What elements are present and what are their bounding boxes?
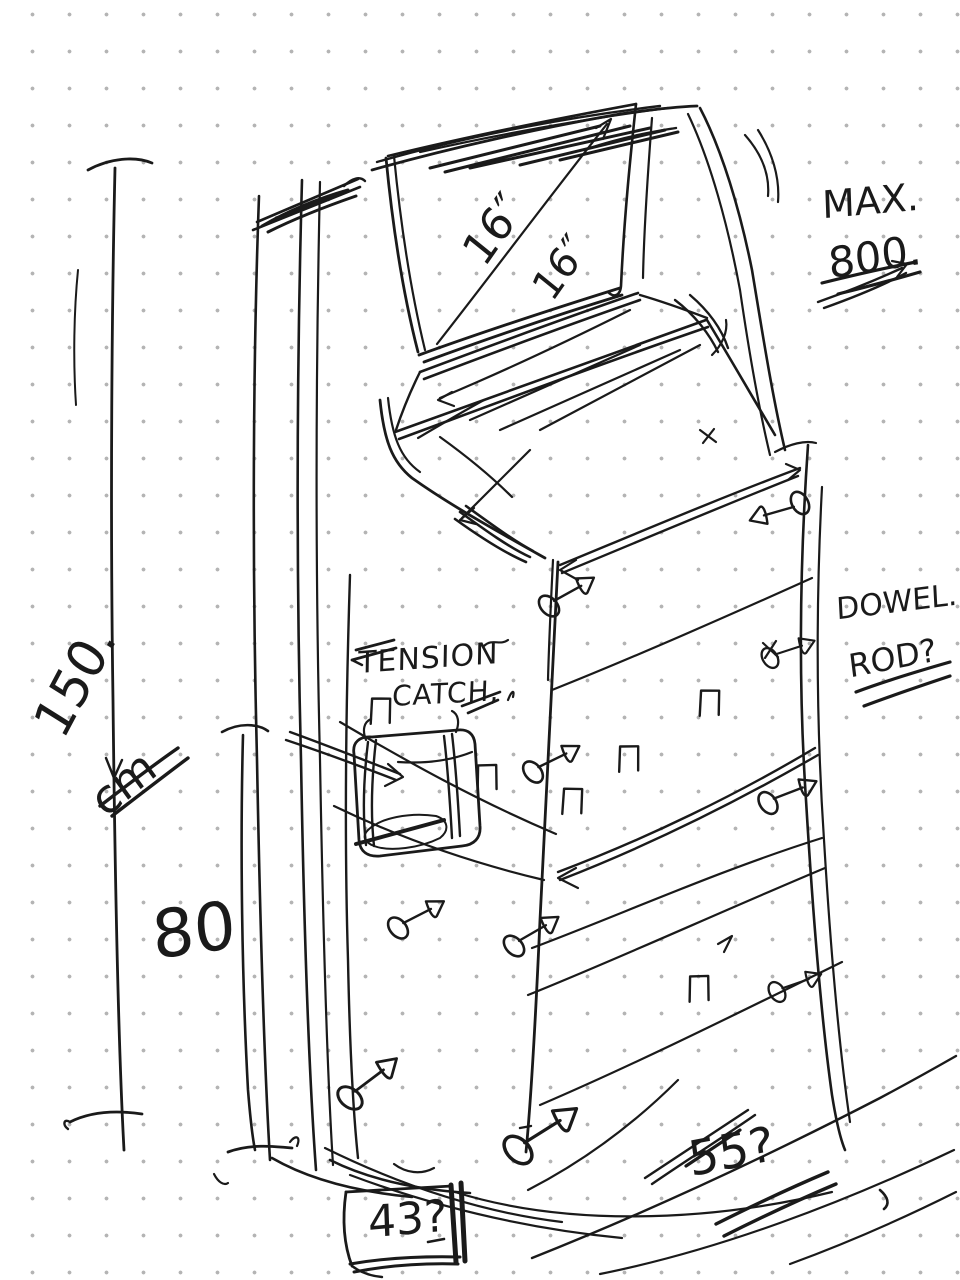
tension-catch-arrow bbox=[286, 732, 400, 780]
keyboard-to-body-strokes bbox=[380, 398, 545, 562]
shelf-lines bbox=[484, 464, 842, 1184]
cabinet-body bbox=[330, 445, 956, 1274]
left-side-panel bbox=[253, 178, 412, 1197]
tension-catch-latch bbox=[286, 711, 556, 880]
annotation-base-depth-value: 43? bbox=[367, 1195, 448, 1246]
annotation-tension-line2: CATCH, bbox=[392, 677, 500, 711]
annotation-mid-width-value: 80 bbox=[150, 892, 239, 970]
sketch-canvas[interactable]: MAX. 800. 16″ 16″ 150. cm 80 TENSION CAT… bbox=[0, 0, 960, 1280]
annotation-max-label: MAX. bbox=[822, 178, 920, 224]
annotation-marks bbox=[352, 261, 950, 1236]
